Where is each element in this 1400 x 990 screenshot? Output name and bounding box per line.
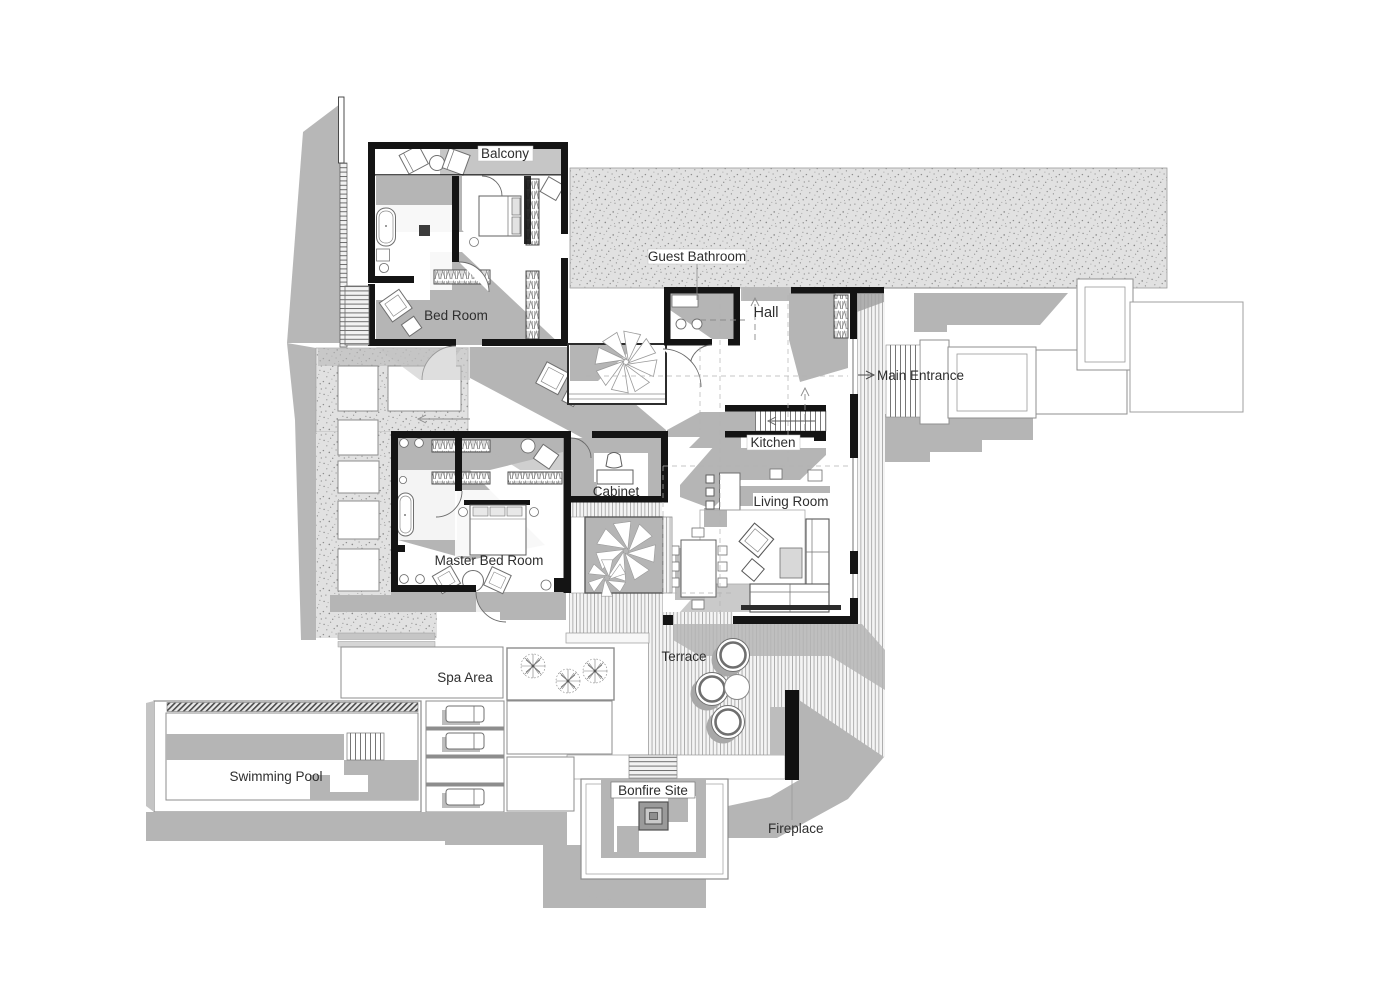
svg-text:Fireplace: Fireplace xyxy=(768,821,824,836)
svg-text:Bonfire Site: Bonfire Site xyxy=(618,783,688,798)
svg-text:Hall: Hall xyxy=(754,305,779,321)
svg-text:Balcony: Balcony xyxy=(481,146,529,161)
svg-text:Guest Bathroom: Guest Bathroom xyxy=(648,249,746,264)
svg-text:Bed Room: Bed Room xyxy=(424,308,488,323)
svg-text:Spa Area: Spa Area xyxy=(437,670,493,685)
svg-text:Main Entrance: Main Entrance xyxy=(877,368,964,383)
svg-text:Swimming Pool: Swimming Pool xyxy=(229,769,322,784)
svg-text:Master Bed Room: Master Bed Room xyxy=(435,553,544,568)
svg-text:Kitchen: Kitchen xyxy=(750,435,795,450)
svg-text:Cabinet: Cabinet xyxy=(593,484,640,499)
svg-text:Living Room: Living Room xyxy=(753,494,828,509)
svg-text:Terrace: Terrace xyxy=(661,649,706,664)
